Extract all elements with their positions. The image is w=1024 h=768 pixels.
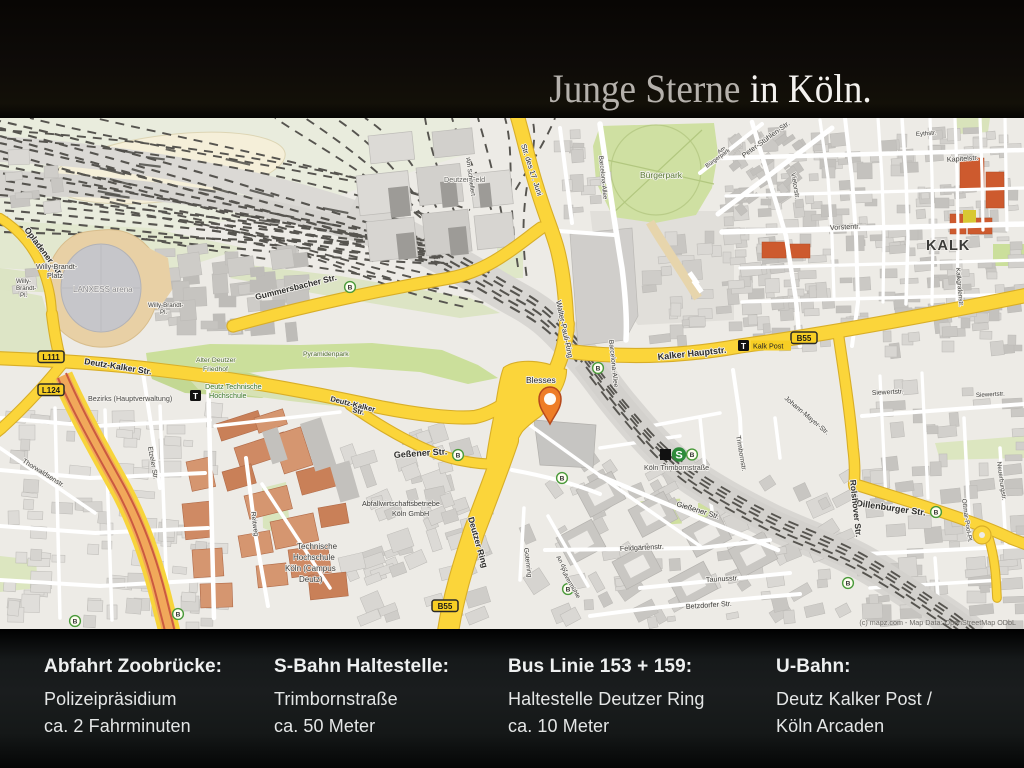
svg-text:Hochschule: Hochschule: [293, 553, 335, 562]
svg-text:T: T: [193, 391, 199, 401]
svg-text:Alter Deutzer: Alter Deutzer: [196, 357, 236, 364]
svg-text:B55: B55: [797, 334, 812, 343]
svg-text:Kalk Post: Kalk Post: [753, 341, 783, 350]
svg-text:Willy-: Willy-: [16, 278, 31, 285]
svg-text:S: S: [675, 449, 682, 461]
svg-text:LANXESS arena: LANXESS arena: [73, 285, 133, 294]
svg-text:KALK: KALK: [926, 238, 970, 254]
svg-text:Bürgerpark: Bürgerpark: [640, 170, 683, 180]
svg-text:T: T: [741, 341, 747, 351]
svg-text:Pl.: Pl.: [160, 309, 168, 316]
svg-text:B: B: [596, 365, 601, 372]
svg-text:B: B: [690, 452, 695, 459]
svg-text:L124: L124: [42, 386, 61, 395]
svg-text:Pyramidenpark: Pyramidenpark: [303, 351, 349, 358]
svg-text:Vorstentr.: Vorstentr.: [830, 221, 861, 232]
svg-text:B: B: [176, 611, 181, 618]
svg-text:Brandt-: Brandt-: [16, 285, 36, 292]
svg-text:B: B: [73, 618, 78, 625]
svg-text:Hochschule: Hochschule: [209, 391, 247, 400]
svg-text:Deutz): Deutz): [299, 575, 323, 584]
svg-text:Bezirks (Hauptverwaltung): Bezirks (Hauptverwaltung): [88, 394, 172, 403]
svg-text:L111: L111: [42, 353, 60, 362]
svg-text:Deutzer Feld: Deutzer Feld: [444, 175, 485, 184]
svg-text:B55: B55: [438, 602, 453, 611]
svg-text:B: B: [560, 475, 565, 482]
svg-text:Taunusstr.: Taunusstr.: [706, 573, 739, 584]
svg-text:B: B: [846, 580, 851, 587]
svg-text:Pl.: Pl.: [20, 292, 28, 299]
svg-text:Technische: Technische: [297, 542, 338, 551]
svg-text:Eythstr.: Eythstr.: [916, 130, 937, 138]
svg-text:Köln GmbH: Köln GmbH: [392, 509, 429, 518]
svg-text:Abfallwirtschaftsbetriebe: Abfallwirtschaftsbetriebe: [362, 499, 440, 508]
svg-text:Friedhof: Friedhof: [203, 366, 228, 373]
svg-text:Köln Trimbornstraße: Köln Trimbornstraße: [644, 463, 709, 472]
svg-text:B: B: [348, 284, 353, 291]
svg-text:Willy-Brandt-: Willy-Brandt-: [148, 302, 183, 309]
svg-text:Willy-Brandt-: Willy-Brandt-: [36, 262, 78, 271]
svg-text:Deutz Technische: Deutz Technische: [205, 382, 262, 391]
svg-text:Köln (Campus: Köln (Campus: [285, 564, 336, 573]
svg-text:Platz: Platz: [47, 271, 63, 280]
svg-text:Blesses: Blesses: [526, 375, 556, 385]
svg-text:(c) mapz.com - Map Data: OpenS: (c) mapz.com - Map Data: OpenStreetMap O…: [859, 618, 1016, 627]
svg-text:B: B: [456, 452, 461, 459]
svg-text:B: B: [934, 509, 939, 516]
